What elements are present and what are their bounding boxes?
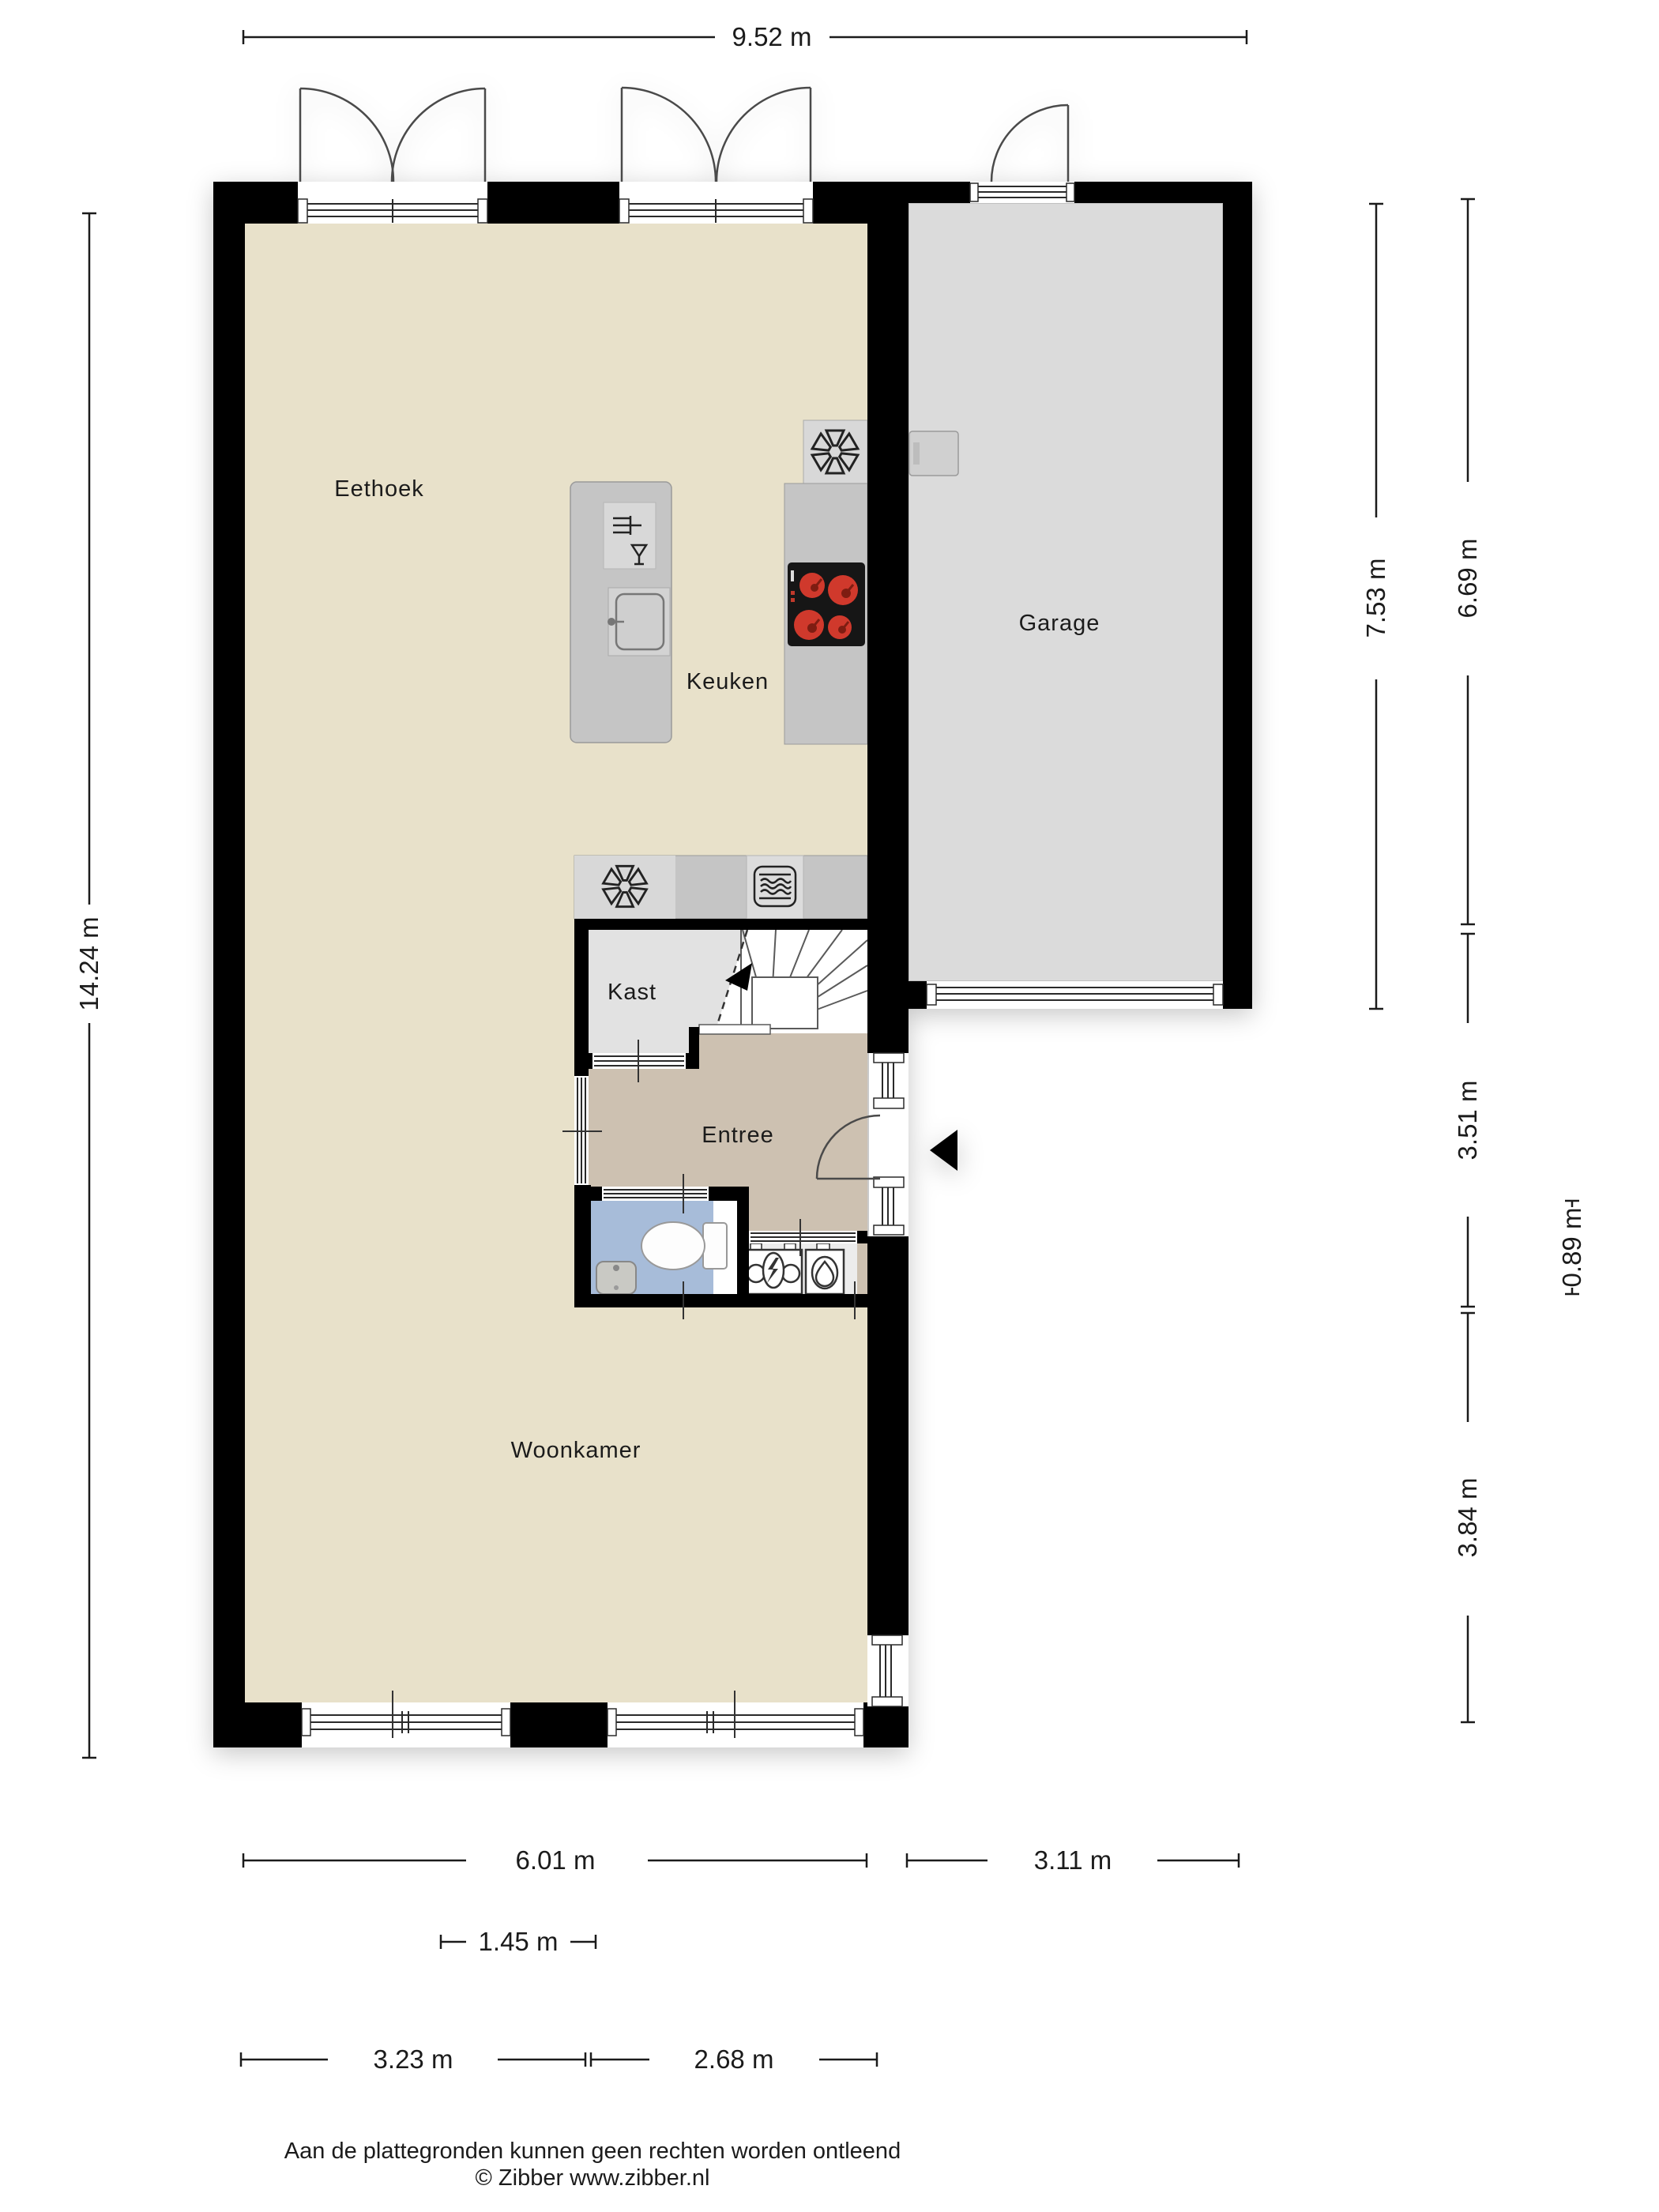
room-label-garage: Garage (1019, 611, 1100, 636)
wall-kast-left (574, 919, 589, 1076)
dimension-stair-width: 1.45 m (441, 1927, 596, 1956)
stair-threshold (699, 1025, 770, 1034)
footer-credit: © Zibber www.zibber.nl (476, 2165, 710, 2191)
dimension-total-height: 14.24 m (74, 213, 103, 1758)
svg-text:3.51 m: 3.51 m (1453, 1081, 1482, 1161)
toilet-bowl (641, 1222, 705, 1270)
dimension-garage-outer-height: 7.53 m (1361, 204, 1390, 1009)
svg-text:1.45 m: 1.45 m (479, 1927, 559, 1956)
window-top-sill-1 (298, 182, 487, 224)
wall-top-c (813, 182, 869, 224)
wall-toilet-left (574, 1185, 591, 1307)
wall-bottom-pier-left (213, 1702, 302, 1747)
window-top-sill-2 (619, 182, 813, 224)
entrance-arrow-icon (930, 1130, 957, 1171)
garage-bottom-window (927, 981, 1223, 1009)
svg-text:3.84 m: 3.84 m (1453, 1478, 1482, 1558)
stair-landing (752, 977, 818, 1029)
svg-text:14.24 m: 14.24 m (74, 916, 103, 1010)
wall-right-corner (863, 1702, 908, 1747)
svg-text:9.52 m: 9.52 m (732, 22, 812, 51)
dimension-bottom-left-width: 3.23 m (241, 2045, 585, 2074)
electric-meter-icon (745, 1243, 802, 1294)
garage-door-sill (970, 182, 1074, 203)
dimension-total-width: 9.52 m (243, 22, 1247, 51)
floors (245, 203, 1223, 1702)
wall-under-toilet (574, 1294, 867, 1307)
meter-window (749, 1231, 857, 1243)
svg-text:6.01 m: 6.01 m (516, 1845, 596, 1875)
room-label-woonkamer: Woonkamer (511, 1438, 641, 1463)
svg-text:0.89 m: 0.89 m (1557, 1208, 1586, 1288)
cooktop-burners-icon (788, 562, 865, 646)
wall-divider (867, 182, 908, 1009)
dimension-bottom-right-width: 2.68 m (591, 2045, 877, 2074)
svg-text:7.53 m: 7.53 m (1361, 559, 1390, 638)
wall-right-mid (867, 1236, 908, 1635)
dimension-house-width: 6.01 m (243, 1845, 867, 1875)
toilet-window (602, 1187, 709, 1201)
room-label-eethoek: Eethoek (334, 476, 423, 502)
basin-faucet-icon (613, 1265, 619, 1271)
wall-stair-stub (689, 1027, 699, 1069)
footer: Aan de plattegronden kunnen geen rechten… (284, 2139, 901, 2191)
toilet-cistern (703, 1223, 727, 1269)
cv-unit-handle (913, 442, 920, 465)
footer-disclaimer: Aan de plattegronden kunnen geen rechten… (284, 2139, 901, 2164)
dimension-meter-depth: 0.89 m (1557, 1201, 1586, 1294)
wall-garage-bottom-stub (907, 981, 927, 1009)
right-wall-window (867, 1635, 908, 1706)
wall-bottom-pier-mid (510, 1702, 608, 1747)
garage-door (991, 105, 1068, 182)
wall-toilet-top-stub-l (591, 1187, 602, 1201)
dimension-entree-height: 3.51 m (1453, 934, 1482, 1307)
dimension-garage-inner-height: 6.69 m (1453, 199, 1482, 924)
gas-meter-icon (806, 1243, 844, 1294)
floor-plan (213, 88, 1252, 1747)
room-label-entree: Entree (702, 1123, 773, 1148)
wall-right-upper (867, 1009, 908, 1053)
wall-kast-bottom-stub-l (574, 1053, 592, 1069)
wall-garage-right (1223, 182, 1252, 1009)
wall-under-counter (574, 919, 867, 930)
french-door-left (300, 88, 485, 182)
svg-text:2.68 m: 2.68 m (694, 2045, 774, 2074)
dimension-woonkamer-right-height: 3.84 m (1453, 1313, 1482, 1722)
floorplan-canvas: 9.52 m 14.24 m 7.53 m 6.69 m (0, 0, 1659, 2212)
svg-text:6.69 m: 6.69 m (1453, 539, 1482, 619)
svg-text:3.23 m: 3.23 m (374, 2045, 453, 2074)
wall-toilet-right (737, 1187, 749, 1307)
meter-units (745, 1243, 844, 1294)
dimension-garage-width: 3.11 m (907, 1845, 1239, 1875)
wall-meter-stub (857, 1231, 867, 1243)
bottom-window-left (302, 1702, 510, 1747)
wall-left (213, 182, 245, 1747)
room-label-kast: Kast (608, 980, 656, 1005)
floor-garage (908, 203, 1223, 981)
wall-top-b (487, 182, 619, 224)
room-label-keuken: Keuken (687, 669, 769, 694)
dishwasher-panel (604, 502, 656, 569)
french-door-right (622, 88, 811, 182)
svg-text:3.11 m: 3.11 m (1034, 1845, 1112, 1875)
wall-garage-top-b (1074, 182, 1223, 203)
